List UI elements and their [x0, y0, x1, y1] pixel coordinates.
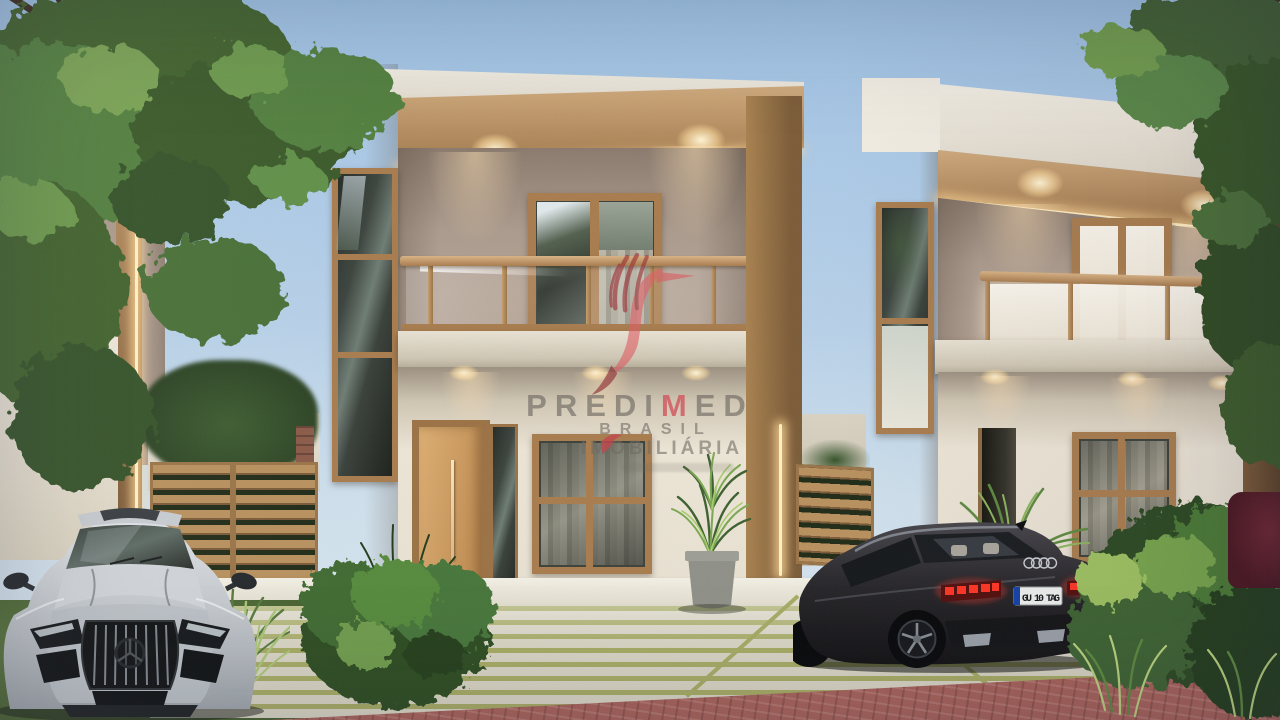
silver-sports-car	[0, 497, 268, 720]
tree-top-left	[0, 0, 420, 530]
right-tall-window-leaf-reflection	[882, 210, 928, 300]
middle-balcony-post-4	[649, 260, 654, 330]
right-balcony-post-1	[985, 280, 990, 344]
middle-balcony-glass	[406, 264, 758, 326]
potted-plant	[652, 445, 772, 615]
bush-left-of-door	[295, 505, 500, 720]
middle-balcony-top-rail	[400, 256, 760, 266]
side-mirror-left	[1, 570, 34, 592]
splitter-lip	[62, 705, 198, 717]
middle-house-pilaster-led	[779, 424, 782, 576]
plant-pot-rim	[685, 551, 739, 561]
architectural-render-scene: GU 10 TAG	[0, 0, 1280, 720]
middle-balcony-post-2	[502, 260, 507, 330]
under-balcony-spot-3	[676, 362, 716, 384]
intake-right	[180, 649, 224, 683]
plant-pot-shadow	[678, 604, 746, 614]
right-house-fascia-left	[862, 78, 940, 152]
ground-window-mullion-v	[586, 438, 593, 570]
middle-balcony-post-3	[586, 260, 591, 330]
sedan-rear-wheel	[888, 610, 946, 668]
ground-window-mullion-h	[536, 497, 648, 504]
middle-balcony-bottom-rail	[402, 324, 758, 331]
lower-intake	[92, 691, 168, 705]
tree-right-foliage	[1083, 0, 1280, 469]
right-tall-window-lower-pane	[882, 326, 928, 428]
intake-left	[36, 649, 80, 683]
distant-red-car	[1228, 492, 1280, 588]
bush-foliage	[300, 559, 495, 707]
right-tall-window-rail	[880, 318, 930, 324]
tree-top-right	[1003, 0, 1280, 482]
tree-foliage	[0, 0, 397, 490]
middle-balcony-post-5	[711, 260, 716, 330]
plant-pot	[688, 557, 736, 609]
mercedes-star-icon	[116, 639, 144, 667]
middle-balcony-post-1	[428, 260, 433, 330]
side-mirror-right	[226, 570, 259, 592]
plant-fronds	[672, 453, 750, 555]
